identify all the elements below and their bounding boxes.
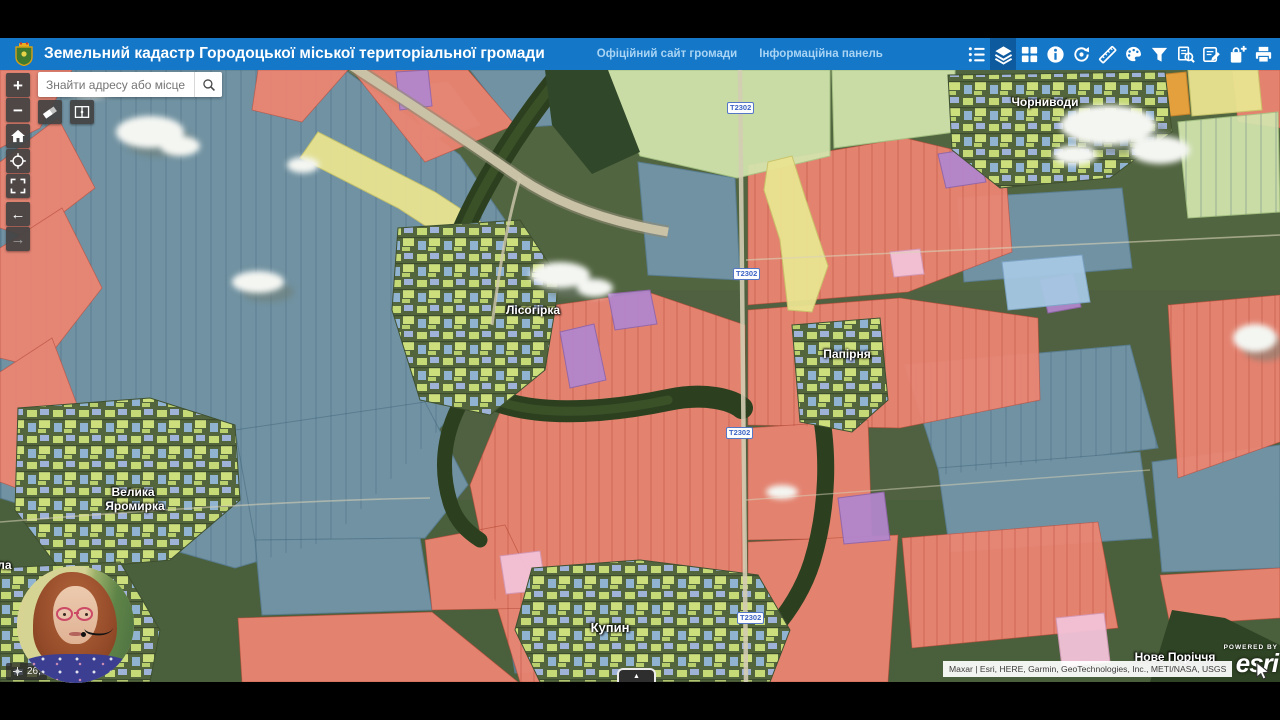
place-label-velyka: Велика: [111, 485, 154, 499]
search-input[interactable]: [38, 78, 194, 92]
letterbox-top: [0, 0, 1280, 38]
info-icon: [1045, 44, 1066, 65]
place-label-kupyn: Купин: [591, 620, 630, 635]
toolbar-info-button[interactable]: [1042, 38, 1068, 70]
toolbar-draw-button[interactable]: [1120, 38, 1146, 70]
toolbar-filter-button[interactable]: [1146, 38, 1172, 70]
parcel-light-blue: [1002, 255, 1090, 310]
locate-icon: [9, 152, 27, 170]
toolbar-add-data-button[interactable]: [1224, 38, 1250, 70]
link-official-site[interactable]: Офіційний сайт громади: [597, 48, 737, 60]
app-header: Земельний кадастр Городоцької міської те…: [0, 38, 1280, 70]
letterbox-bottom: [0, 682, 1280, 720]
edit-notes-icon: [1201, 44, 1222, 65]
attribute-panel-handle[interactable]: ▲: [617, 668, 656, 682]
road-shield-t2302: Т2302: [737, 612, 764, 624]
layers-icon: [993, 44, 1014, 65]
coat-of-arms-logo: [14, 42, 34, 66]
road-shield-t2302: Т2302: [727, 102, 754, 114]
draw-palette-icon: [1123, 44, 1144, 65]
toolbar-edit-button[interactable]: [1198, 38, 1224, 70]
search-box: [38, 72, 222, 97]
previous-extent-button[interactable]: ←: [6, 202, 30, 226]
query-search-icon: [1175, 44, 1196, 65]
eraser-icon: [41, 103, 59, 121]
add-data-bag-icon: [1227, 44, 1248, 65]
place-label-yaromyrka: Яромирка: [105, 499, 164, 513]
sync-icon: [1071, 44, 1092, 65]
map-attribution: Maxar | Esri, HERE, Garmin, GeoTechnolog…: [943, 661, 1232, 677]
toolbar-print-button[interactable]: [1250, 38, 1276, 70]
toolbar-measure-button[interactable]: [1094, 38, 1120, 70]
place-label-mala-cut: Мала: [0, 558, 12, 572]
place-label-lisohirka: Лісогірка: [506, 303, 560, 317]
link-info-panel[interactable]: Інформаційна панель: [759, 48, 883, 60]
swipe-icon: [73, 103, 91, 121]
road-shield-t2302: Т2302: [726, 427, 753, 439]
mouse-cursor: [1256, 662, 1270, 680]
map-viewport[interactable]: Чорниводи Лісогірка Папірня Велика Яроми…: [0, 70, 1280, 682]
basemap-gallery-icon: [1019, 44, 1040, 65]
toolbar-basemap-button[interactable]: [1016, 38, 1042, 70]
cadastral-map-canvas[interactable]: [0, 70, 1280, 682]
presenter-shirt: [19, 654, 132, 683]
home-icon: [9, 127, 27, 145]
filter-funnel-icon: [1149, 44, 1170, 65]
page-title: Земельний кадастр Городоцької міської те…: [44, 45, 545, 63]
toolbar-layers-button[interactable]: [990, 38, 1016, 70]
measure-ruler-icon: [1097, 44, 1118, 65]
zoom-out-button[interactable]: −: [6, 98, 30, 122]
fullscreen-button[interactable]: [6, 174, 30, 198]
search-icon: [201, 77, 217, 93]
next-extent-button[interactable]: →: [6, 227, 30, 251]
presenter-webcam-bubble: [17, 566, 134, 683]
home-button[interactable]: [6, 124, 30, 148]
header-nav: Офіційний сайт громади Інформаційна пане…: [597, 48, 883, 60]
print-icon: [1253, 44, 1274, 65]
app-window: Чорниводи Лісогірка Папірня Велика Яроми…: [0, 0, 1280, 720]
swipe-tool-button[interactable]: [70, 100, 94, 124]
search-button[interactable]: [194, 72, 222, 97]
place-label-papirnia: Папірня: [823, 347, 870, 361]
fullscreen-icon: [9, 177, 27, 195]
header-toolbar: [964, 38, 1276, 70]
parcel-lines-green-right: [1178, 112, 1280, 218]
toolbar-query-button[interactable]: [1172, 38, 1198, 70]
toolbar-legend-button[interactable]: [964, 38, 990, 70]
eraser-tool-button[interactable]: [38, 100, 62, 124]
locate-button[interactable]: [6, 149, 30, 173]
road-shield-t2302: Т2302: [733, 268, 760, 280]
zoom-in-button[interactable]: +: [6, 73, 30, 97]
toolbar-sync-button[interactable]: [1068, 38, 1094, 70]
chevron-up-icon: ▲: [633, 673, 640, 680]
place-label-chornyvody: Чорниводи: [1011, 95, 1078, 109]
legend-list-icon: [967, 44, 988, 65]
